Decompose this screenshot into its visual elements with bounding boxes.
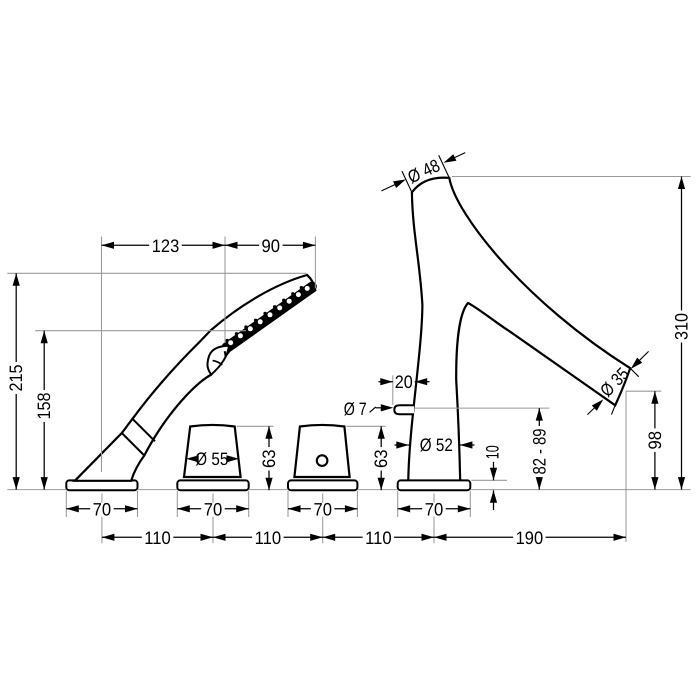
svg-text:Ø 7: Ø 7 (344, 399, 367, 419)
svg-text:70: 70 (425, 500, 444, 520)
svg-text:158: 158 (34, 393, 54, 420)
svg-text:Ø 55: Ø 55 (195, 449, 228, 469)
svg-text:190: 190 (516, 528, 544, 548)
svg-text:215: 215 (6, 365, 26, 392)
svg-text:110: 110 (144, 528, 171, 548)
svg-text:70: 70 (93, 500, 112, 520)
svg-text:90: 90 (262, 236, 281, 256)
svg-text:310: 310 (672, 313, 692, 340)
svg-text:Ø 52: Ø 52 (420, 435, 453, 455)
svg-text:82 - 89: 82 - 89 (529, 429, 549, 475)
svg-text:110: 110 (255, 528, 282, 548)
svg-text:98: 98 (645, 431, 665, 450)
svg-text:70: 70 (313, 500, 332, 520)
svg-text:20: 20 (395, 372, 413, 392)
svg-text:10: 10 (482, 445, 502, 459)
svg-text:70: 70 (204, 500, 223, 520)
svg-text:63: 63 (259, 450, 279, 469)
svg-text:110: 110 (365, 528, 392, 548)
svg-text:123: 123 (152, 236, 180, 256)
svg-text:63: 63 (371, 450, 391, 469)
